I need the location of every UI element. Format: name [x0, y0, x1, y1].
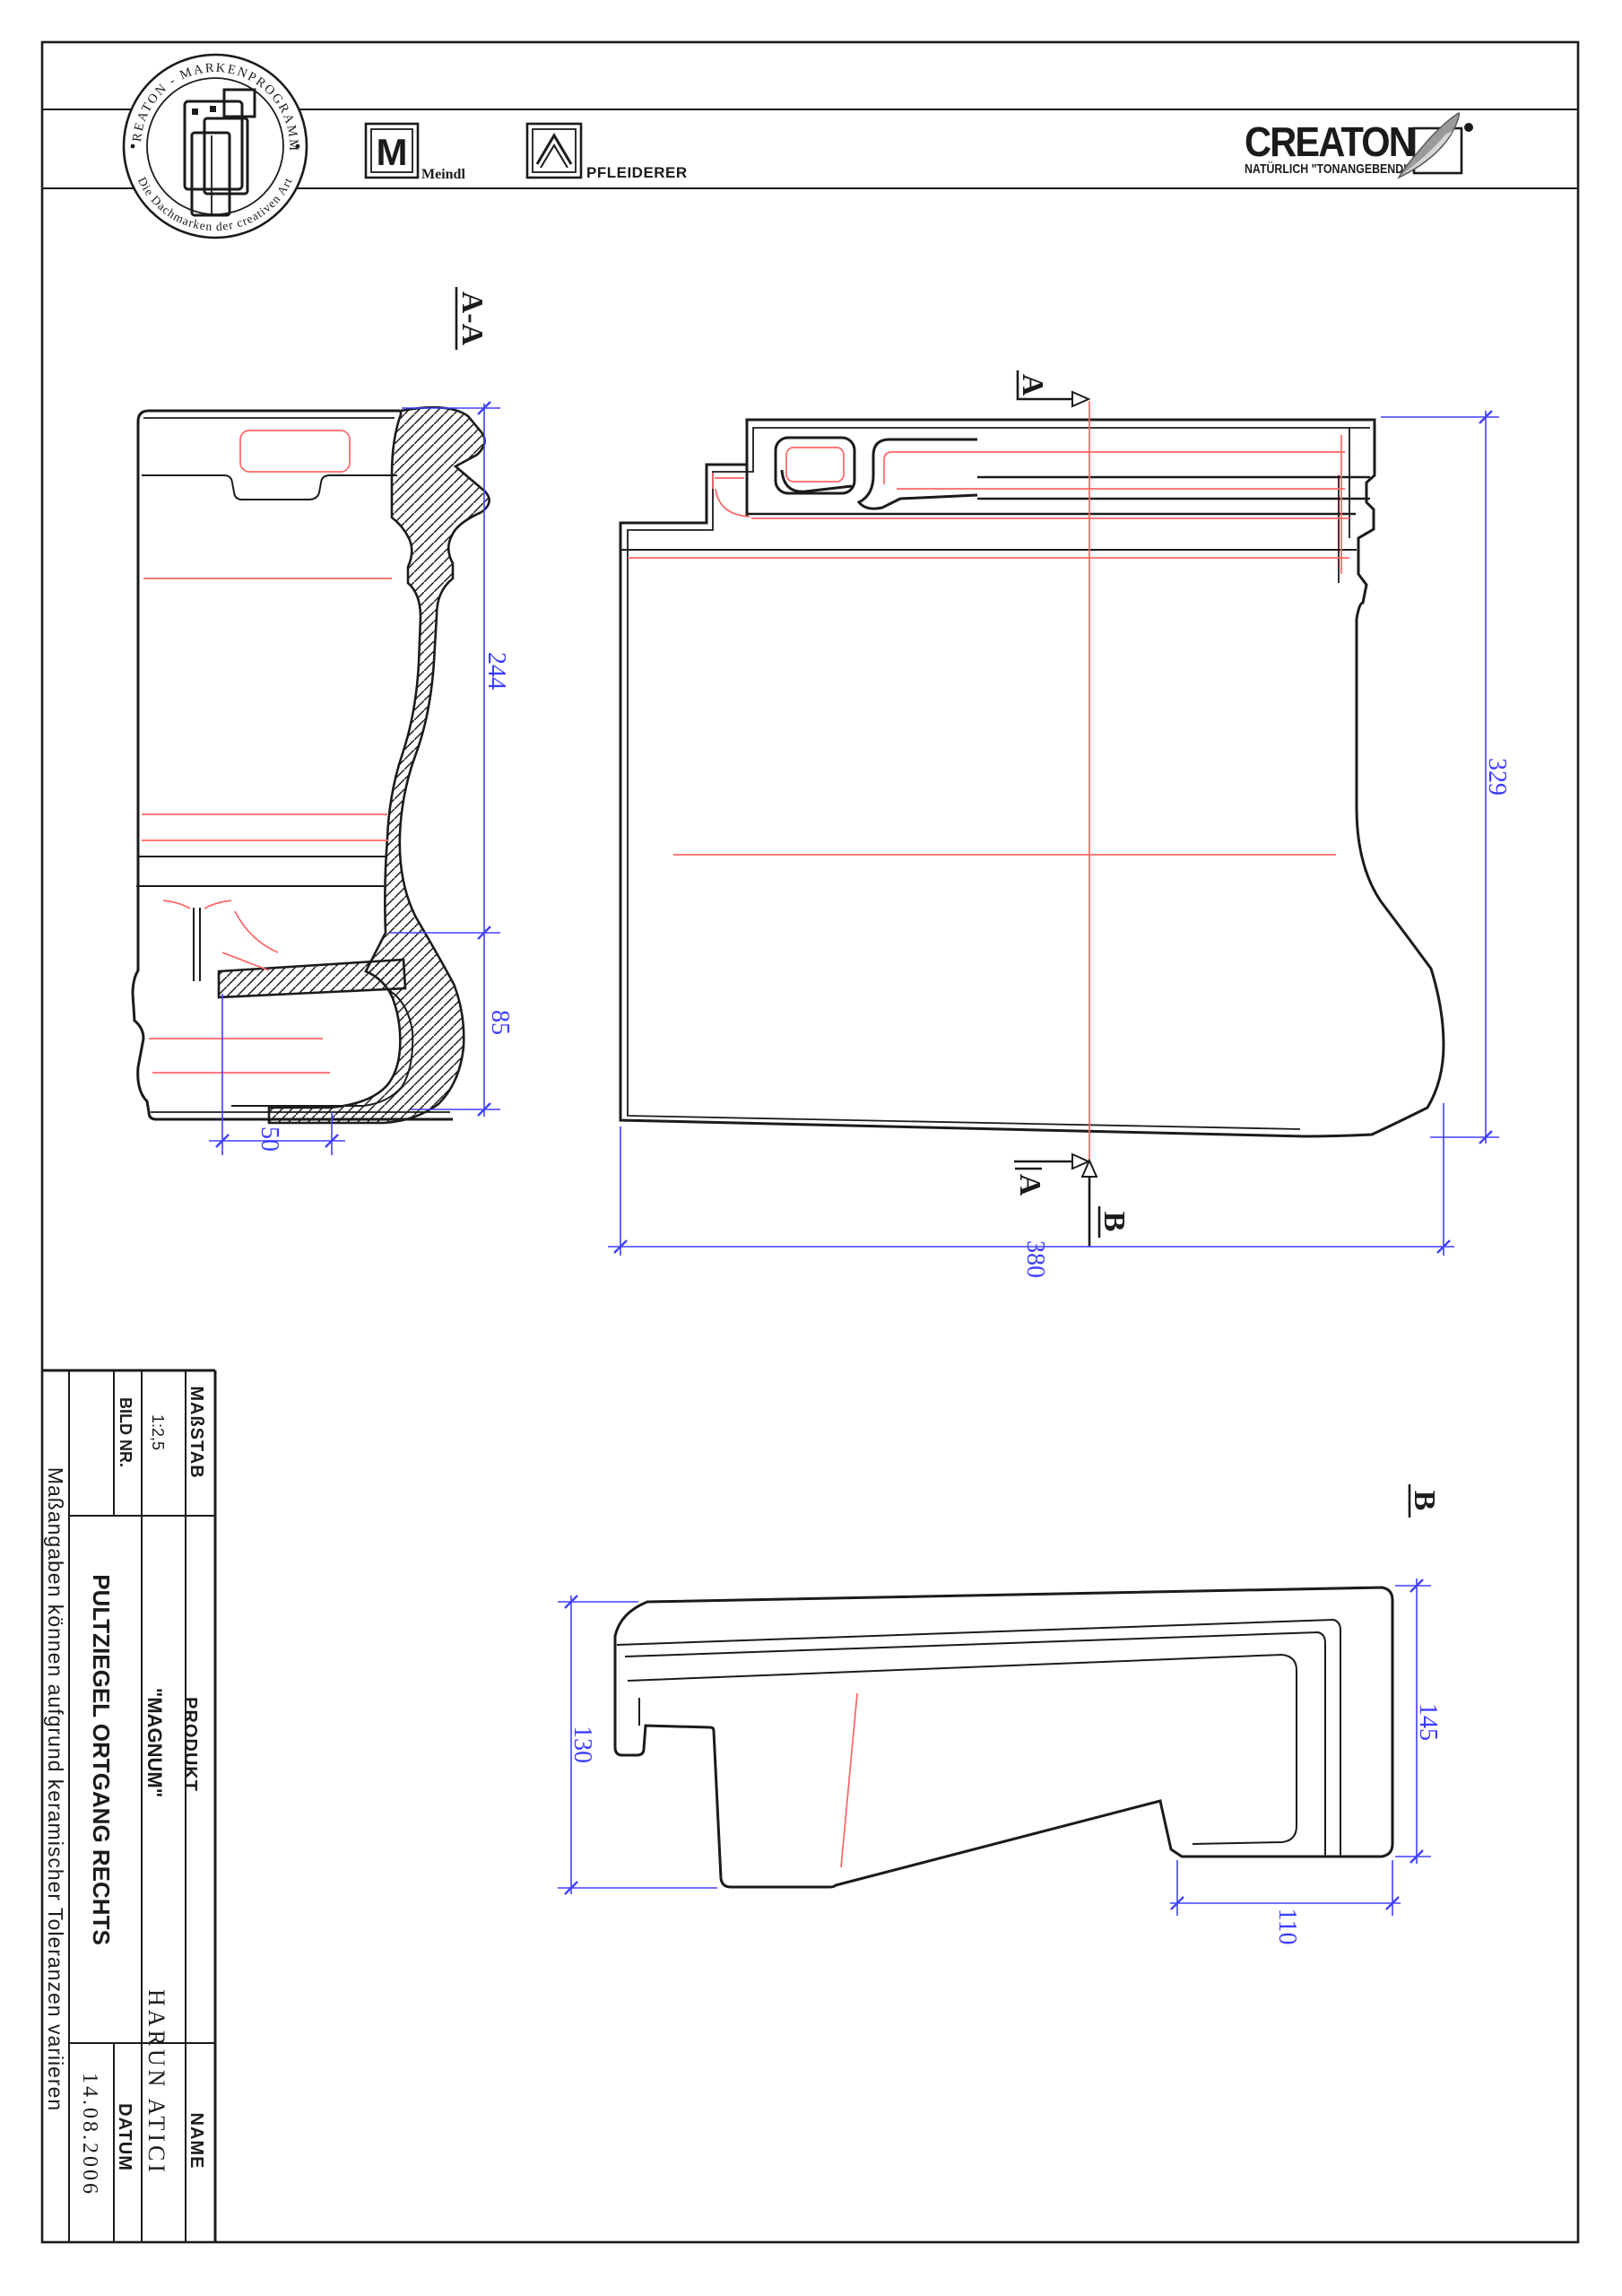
- dim-50: 50: [256, 1126, 283, 1152]
- section-b-view-label: B: [1408, 1491, 1441, 1511]
- stamp-separator-dot-left: [131, 144, 135, 149]
- creaton-tagline: NATÜRLICH "TONANGEBEND": [1245, 161, 1409, 177]
- produkt-value: "MAGNUM": [143, 1688, 166, 1797]
- massstab-label: MAßSTAB: [186, 1386, 206, 1478]
- main-inner-offset: [628, 428, 1370, 1129]
- dim-85: 85: [486, 1010, 514, 1035]
- registered-dot-icon: [1464, 123, 1473, 132]
- main-window-2: [859, 439, 1370, 509]
- pfleiderer-logo-icon: PFLEIDERER: [527, 124, 688, 181]
- main-plan-view: A A B 329 380: [608, 370, 1511, 1278]
- section-aa-view: A-A: [133, 287, 514, 1155]
- section-a-label-bottom: A: [1013, 1174, 1046, 1196]
- dim-110: 110: [1273, 1909, 1301, 1945]
- aa-hatched-wall: [269, 407, 490, 1123]
- tolerance-disclaimer: Maßangaben können aufgrund keramischer T…: [44, 1467, 67, 2111]
- main-window-1: [776, 438, 854, 493]
- produkt-label: PRODUKT: [180, 1697, 200, 1792]
- dim-329: 329: [1483, 758, 1511, 796]
- dim-145: 145: [1414, 1703, 1442, 1741]
- name-value: HARUN ATICI: [143, 1989, 169, 2176]
- section-aa-label: A-A: [455, 291, 489, 346]
- dim-244: 244: [482, 652, 510, 690]
- name-label: NAME: [186, 2113, 206, 2170]
- logo-strip: CREATON - MARKENPROGRAMM Die Dachmarken …: [0, 0, 1473, 238]
- section-arrow-icon: [1072, 392, 1089, 406]
- creaton-markenprogramm-stamp-icon: CREATON - MARKENPROGRAMM Die Dachmarken …: [0, 0, 307, 238]
- dim-130: 130: [568, 1726, 596, 1763]
- section-marker-a-top: A: [1016, 370, 1089, 406]
- stamp-separator-dot-right: [296, 144, 300, 149]
- dim-380: 380: [1021, 1240, 1049, 1278]
- b-band-line-1: [617, 1620, 1340, 1857]
- creaton-logo: CREATON NATÜRLICH "TONANGEBEND": [1245, 113, 1473, 178]
- pfleiderer-chevron-outer: [537, 135, 571, 164]
- section-a-label-top: A: [1016, 374, 1049, 396]
- title-block: MAßSTAB 1:2,5 BILD NR. PRODUKT "MAGNUM" …: [42, 1370, 215, 2242]
- bild-nr-label: BILD NR.: [117, 1397, 134, 1467]
- b-red-reference-line: [841, 1693, 857, 1867]
- drawing-sheet: CREATON - MARKENPROGRAMM Die Dachmarken …: [0, 0, 1622, 2296]
- pfleiderer-label: PFLEIDERER: [586, 164, 688, 181]
- section-b-view: B 130 145 110: [558, 1484, 1442, 1944]
- datum-value: 14.08.2006: [78, 2073, 101, 2196]
- b-band-line-2: [625, 1632, 1325, 1857]
- section-b-label-marker: B: [1097, 1212, 1131, 1232]
- meindl-monogram: M: [377, 131, 408, 173]
- meindl-logo-icon: M Meindl: [366, 124, 465, 182]
- product-name: PULTZIEGEL ORTGANG RECHTS: [88, 1574, 115, 1945]
- datum-label: DATUM: [115, 2103, 134, 2171]
- massstab-value: 1:2,5: [149, 1414, 167, 1450]
- main-red-reference-lines: [628, 401, 1349, 1184]
- b-band-line-3: [628, 1655, 1297, 1844]
- section-marker-b: B: [1082, 1161, 1131, 1247]
- aa-hatched-wedge: [219, 960, 405, 997]
- main-outline: [620, 420, 1444, 1136]
- section-marker-a-bottom: A: [1013, 1154, 1089, 1196]
- main-dimension-group: 329 380: [608, 411, 1511, 1278]
- meindl-label: Meindl: [421, 167, 465, 182]
- aa-step-band: [142, 475, 397, 500]
- creaton-wordmark: CREATON: [1245, 118, 1414, 165]
